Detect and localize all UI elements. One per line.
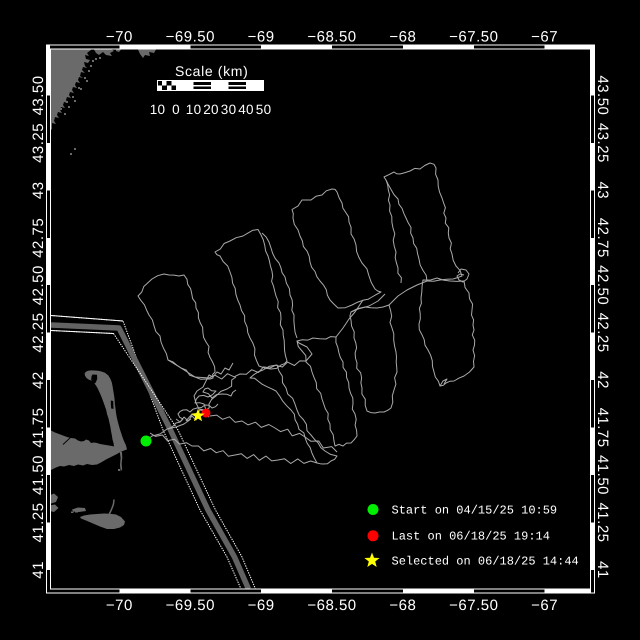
svg-text:41: 41 (30, 561, 47, 579)
svg-text:42.75: 42.75 (594, 218, 611, 258)
svg-text:43: 43 (594, 181, 611, 199)
svg-text:−68: −68 (389, 597, 416, 614)
svg-text:41.75: 41.75 (30, 408, 47, 448)
svg-text:41.50: 41.50 (30, 455, 47, 495)
svg-text:−67: −67 (531, 597, 558, 614)
svg-text:−69: −69 (248, 597, 275, 614)
svg-text:42: 42 (594, 371, 611, 389)
svg-text:10: 10 (186, 102, 202, 117)
svg-text:−69: −69 (248, 29, 275, 46)
svg-text:42.25: 42.25 (30, 313, 47, 353)
svg-text:−68.50: −68.50 (307, 29, 356, 46)
svg-text:30: 30 (221, 102, 237, 117)
svg-text:−70: −70 (106, 29, 133, 46)
svg-text:43.50: 43.50 (594, 75, 611, 115)
svg-text:42: 42 (30, 371, 47, 389)
svg-text:−68.50: −68.50 (307, 597, 356, 614)
svg-text:43.50: 43.50 (30, 75, 47, 115)
svg-text:43: 43 (30, 181, 47, 199)
svg-text:Last on 06/18/25 19:14: Last on 06/18/25 19:14 (392, 530, 550, 544)
svg-text:41.25: 41.25 (594, 502, 611, 542)
svg-text:0: 0 (172, 102, 180, 117)
svg-text:Scale (km): Scale (km) (175, 63, 248, 79)
svg-text:−67.50: −67.50 (449, 597, 498, 614)
svg-text:−69.50: −69.50 (166, 597, 215, 614)
svg-text:−69.50: −69.50 (166, 29, 215, 46)
svg-text:43.25: 43.25 (594, 123, 611, 163)
svg-text:−70: −70 (106, 597, 133, 614)
svg-text:41: 41 (594, 561, 611, 579)
svg-text:10: 10 (150, 102, 166, 117)
svg-text:−67.50: −67.50 (449, 29, 498, 46)
svg-text:41.25: 41.25 (30, 502, 47, 542)
svg-text:41.50: 41.50 (594, 455, 611, 495)
svg-text:Start on 04/15/25 10:59: Start on 04/15/25 10:59 (392, 504, 558, 518)
svg-text:50: 50 (256, 102, 272, 117)
svg-text:20: 20 (203, 102, 219, 117)
svg-text:43.25: 43.25 (30, 123, 47, 163)
svg-text:41.75: 41.75 (594, 408, 611, 448)
svg-text:42.50: 42.50 (30, 265, 47, 305)
svg-text:42.75: 42.75 (30, 218, 47, 258)
svg-text:−67: −67 (531, 29, 558, 46)
svg-text:40: 40 (238, 102, 254, 117)
svg-text:Selected on 06/18/25 14:44: Selected on 06/18/25 14:44 (392, 555, 579, 569)
svg-text:−68: −68 (389, 29, 416, 46)
svg-text:42.25: 42.25 (594, 313, 611, 353)
svg-text:42.50: 42.50 (594, 265, 611, 305)
